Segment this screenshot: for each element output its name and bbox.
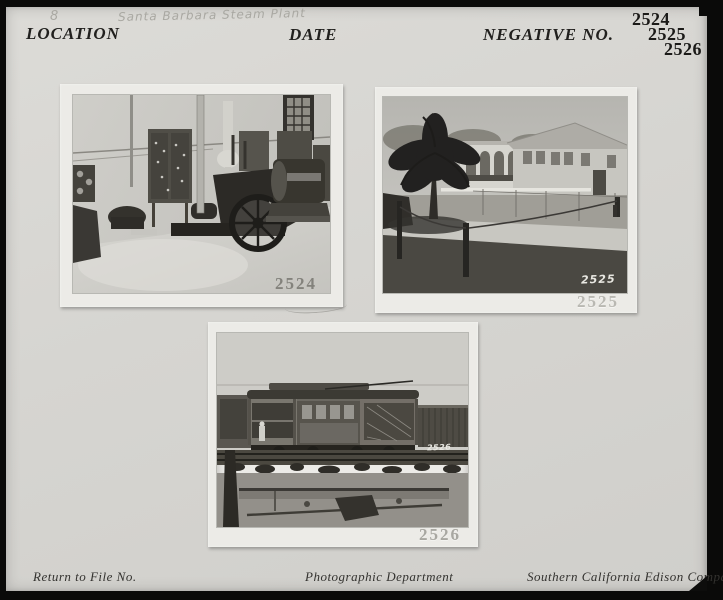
photo-mount-2524: 2524 <box>60 84 343 307</box>
vertical-pipe <box>197 95 204 213</box>
center-cab <box>297 401 360 445</box>
gauge-panel <box>73 165 95 202</box>
person <box>259 421 264 426</box>
handwritten-location: Santa Barbara Steam Plant <box>118 6 306 24</box>
photo-2525 <box>383 97 627 293</box>
doorway <box>593 170 606 199</box>
generator <box>266 159 330 222</box>
photo-handwritten-number-2525: 2525 <box>581 272 616 286</box>
right-platform <box>360 399 418 445</box>
photo-mount-2525: 2525 2525 <box>375 87 637 313</box>
streetcar <box>247 381 419 458</box>
location-label: LOCATION <box>26 24 120 44</box>
pencil-page-number: 8 <box>50 9 58 24</box>
left-platform <box>248 399 297 445</box>
scan-edge-notch <box>699 0 723 16</box>
photo-2524-image <box>73 95 330 293</box>
date-label: DATE <box>289 25 337 45</box>
photo-2524 <box>73 95 330 293</box>
negative-no-label: NEGATIVE NO. <box>483 25 614 45</box>
scanned-album-page: 8 Santa Barbara Steam Plant LOCATION DAT… <box>0 0 723 600</box>
photo-stamp-2525: 2525 <box>577 292 619 312</box>
page-corner-shadow <box>689 576 707 591</box>
photographic-department-label: Photographic Department <box>305 569 453 585</box>
photo-2525-image <box>383 97 627 293</box>
album-page: 8 Santa Barbara Steam Plant LOCATION DAT… <box>6 7 707 591</box>
photo-2526 <box>217 333 468 527</box>
dark-equipment <box>73 205 101 263</box>
photo-2526-image <box>217 333 468 527</box>
negative-number-2526: 2526 <box>664 42 702 57</box>
photo-stamp-2526: 2526 <box>419 525 461 545</box>
photo-mount-2526: 2526 2526 <box>208 322 478 547</box>
freight-boxcar <box>418 405 468 447</box>
return-to-file-label: Return to File No. <box>33 569 137 585</box>
photo-handwritten-number-2526: 2526 <box>427 443 452 453</box>
photo-stamp-2524: 2524 <box>275 274 317 294</box>
